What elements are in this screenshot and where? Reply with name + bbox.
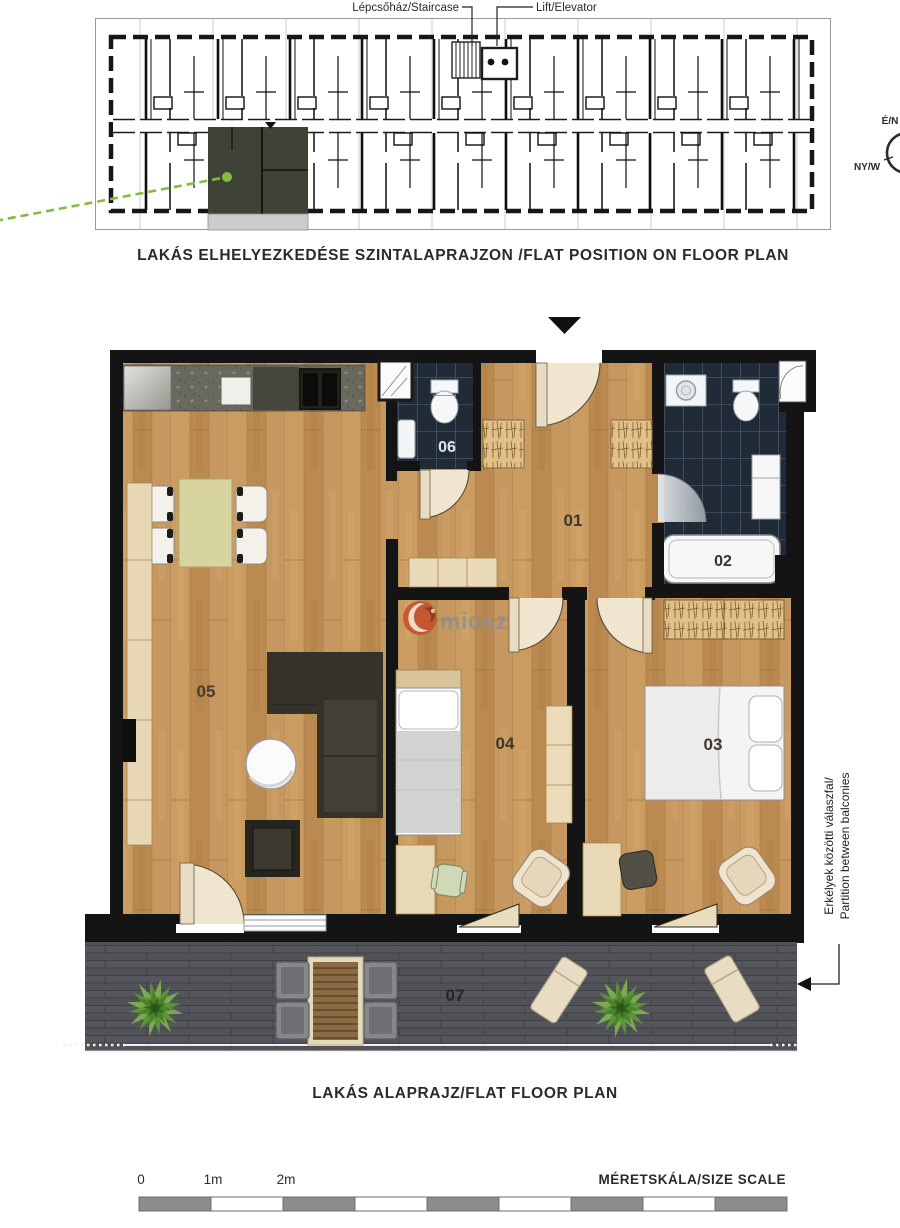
svg-text:Erkélyek közötti válaszfal/: Erkélyek közötti válaszfal/	[822, 777, 836, 915]
svg-text:LAKÁS ALAPRAJZ/FLAT FLOOR PLAN: LAKÁS ALAPRAJZ/FLAT FLOOR PLAN	[312, 1085, 618, 1102]
svg-text:0: 0	[137, 1172, 145, 1187]
svg-text:2m: 2m	[277, 1172, 296, 1187]
svg-text:07: 07	[446, 986, 465, 1005]
svg-text:02: 02	[714, 553, 732, 570]
svg-text:Partition between balconies: Partition between balconies	[838, 773, 852, 920]
svg-text:É/N: É/N	[882, 114, 899, 127]
svg-text:05: 05	[197, 682, 216, 701]
svg-text:Lift/Elevator: Lift/Elevator	[536, 2, 597, 14]
svg-text:Lépcsőház/Staircase: Lépcsőház/Staircase	[352, 2, 459, 14]
svg-text:01: 01	[564, 511, 583, 530]
svg-text:NY/W: NY/W	[854, 162, 881, 173]
svg-text:MÉRETSKÁLA/SIZE SCALE: MÉRETSKÁLA/SIZE SCALE	[598, 1172, 786, 1187]
svg-text:03: 03	[704, 735, 723, 754]
svg-text:04: 04	[496, 734, 515, 753]
svg-text:LAKÁS ELHELYEZKEDÉSE SZINTALAP: LAKÁS ELHELYEZKEDÉSE SZINTALAPRAJZON /FL…	[137, 247, 789, 264]
svg-text:miosz: miosz	[440, 608, 508, 634]
svg-text:06: 06	[438, 439, 456, 456]
svg-text:1m: 1m	[204, 1172, 223, 1187]
